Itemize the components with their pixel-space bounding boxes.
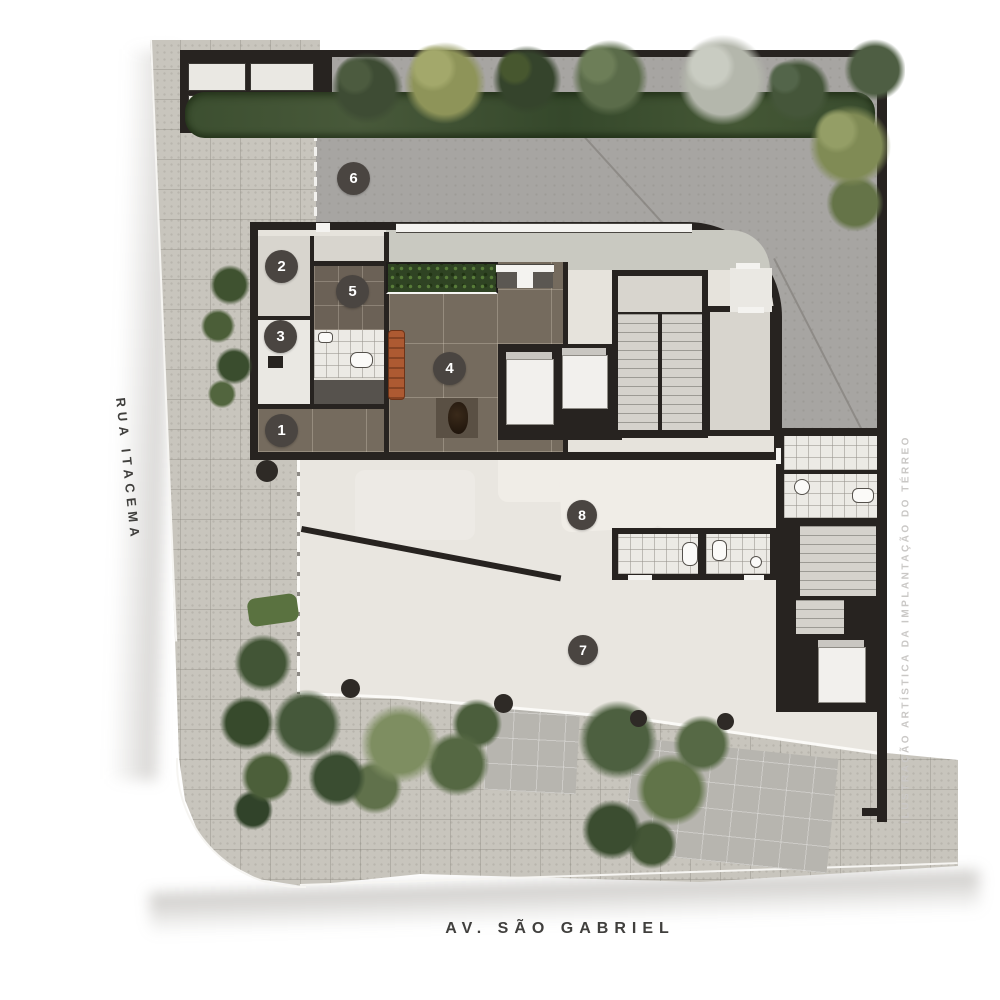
door-opening xyxy=(738,307,764,313)
elevator-car xyxy=(506,359,554,425)
interior-wall xyxy=(314,261,384,266)
hedge-left xyxy=(196,258,270,408)
stairs xyxy=(796,600,844,634)
bathroom-floor xyxy=(784,436,878,470)
door-opening xyxy=(628,575,652,580)
sink-fixture xyxy=(794,479,810,495)
marker-5: 5 xyxy=(336,275,369,308)
site-wall-notch xyxy=(862,808,880,816)
toilet-fixture xyxy=(712,540,727,561)
entrance-door-opening xyxy=(517,272,533,288)
room-3-item xyxy=(268,356,283,368)
spotlight-dot xyxy=(341,679,360,698)
elevator-car xyxy=(562,355,608,409)
watermark-label: ILUSTRAÇÃO ARTÍSTICA DA IMPLANTAÇÃO DO T… xyxy=(901,444,912,824)
street-label-av-sao-gabriel: AV. SÃO GABRIEL xyxy=(360,920,760,938)
marker-1: 1 xyxy=(265,414,298,447)
green-wall-planter xyxy=(386,262,498,294)
spotlight-dot xyxy=(717,713,734,730)
stairs xyxy=(800,526,876,596)
garden-bed-right xyxy=(550,682,745,877)
counter xyxy=(314,380,384,406)
stairs xyxy=(662,314,702,430)
door-opening xyxy=(736,263,760,269)
toilet-fixture xyxy=(350,352,373,368)
back-room-floor xyxy=(710,312,770,430)
vestibule-floor xyxy=(730,268,772,312)
toilet-fixture xyxy=(682,542,698,566)
marker-4: 4 xyxy=(433,352,466,385)
marker-3: 3 xyxy=(264,320,297,353)
spotlight-dot xyxy=(494,694,513,713)
stair-landing xyxy=(618,276,702,312)
garden-bed-left xyxy=(245,682,515,822)
spotlight-dot xyxy=(630,710,647,727)
elevator-car xyxy=(818,647,866,703)
toilet-fixture xyxy=(852,488,874,503)
sculpture xyxy=(448,402,468,434)
bench xyxy=(388,330,405,400)
marker-8: 8 xyxy=(567,500,597,530)
utility-room xyxy=(250,63,314,91)
terrace-furniture xyxy=(355,470,475,540)
tree-canopies-top xyxy=(315,18,905,238)
spotlight-dot xyxy=(256,460,278,482)
marker-6: 6 xyxy=(337,162,370,195)
sink-fixture xyxy=(750,556,762,568)
entrance-door xyxy=(497,272,517,288)
marker-7: 7 xyxy=(568,635,598,665)
stairs xyxy=(618,314,658,430)
marker-2: 2 xyxy=(265,250,298,283)
sink-fixture xyxy=(318,332,333,343)
site-plan: 1 2 3 4 5 6 7 8 RUA ITACEMA AV. SÃO GABR… xyxy=(0,0,1000,1000)
door-opening xyxy=(776,448,781,464)
entrance-door xyxy=(533,272,553,288)
utility-room xyxy=(188,63,246,91)
door-opening xyxy=(744,575,764,580)
